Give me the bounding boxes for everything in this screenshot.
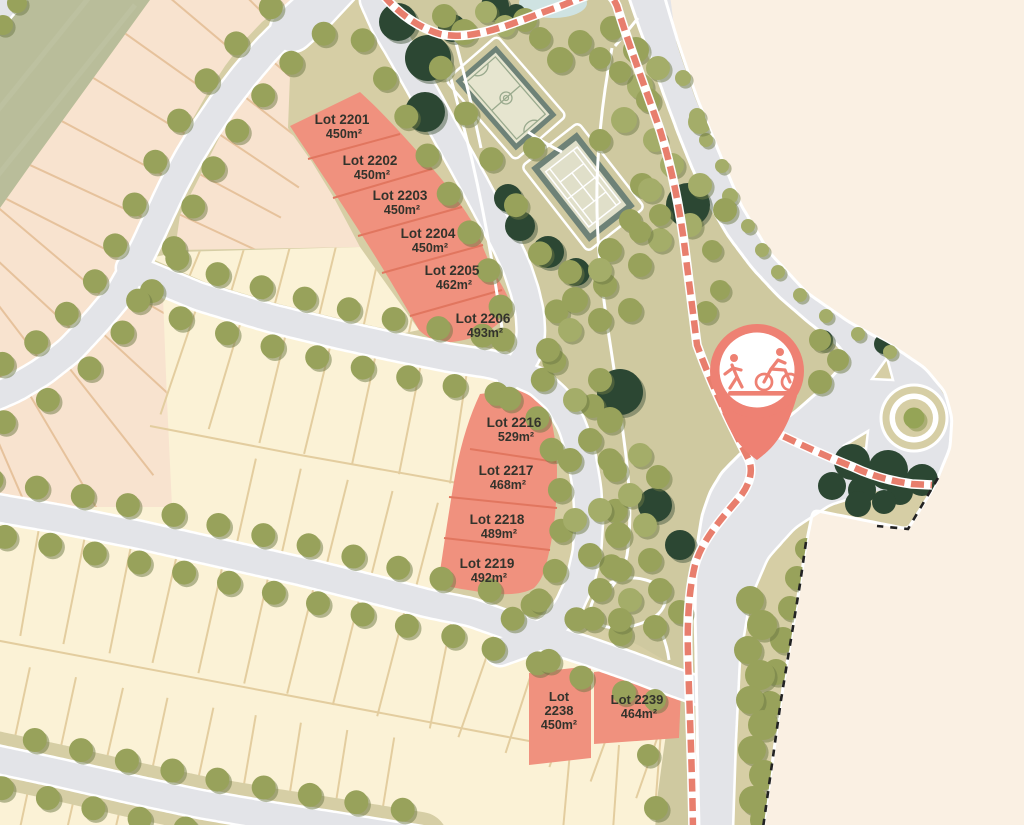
svg-text:489m²: 489m² bbox=[481, 527, 517, 541]
svg-text:Lot 2239: Lot 2239 bbox=[611, 692, 664, 707]
svg-text:450m²: 450m² bbox=[326, 127, 362, 141]
svg-text:Lot 2205: Lot 2205 bbox=[425, 263, 480, 278]
svg-text:Lot: Lot bbox=[549, 689, 570, 704]
svg-text:464m²: 464m² bbox=[621, 707, 657, 721]
svg-text:Lot 2202: Lot 2202 bbox=[343, 153, 398, 168]
svg-text:Lot 2203: Lot 2203 bbox=[373, 188, 428, 203]
svg-text:529m²: 529m² bbox=[498, 430, 534, 444]
svg-text:493m²: 493m² bbox=[467, 326, 503, 340]
svg-text:492m²: 492m² bbox=[471, 571, 507, 585]
svg-text:Lot 2218: Lot 2218 bbox=[470, 512, 525, 527]
svg-text:Lot 2204: Lot 2204 bbox=[401, 226, 456, 241]
svg-text:Lot 2216: Lot 2216 bbox=[487, 415, 542, 430]
svg-text:450m²: 450m² bbox=[384, 203, 420, 217]
svg-text:Lot 2219: Lot 2219 bbox=[460, 556, 515, 571]
svg-text:2238: 2238 bbox=[545, 703, 574, 718]
svg-text:Lot 2206: Lot 2206 bbox=[456, 311, 511, 326]
svg-text:450m²: 450m² bbox=[541, 718, 577, 732]
svg-text:Lot 2201: Lot 2201 bbox=[315, 112, 370, 127]
svg-text:468m²: 468m² bbox=[490, 478, 526, 492]
svg-text:462m²: 462m² bbox=[436, 278, 472, 292]
svg-text:Lot 2217: Lot 2217 bbox=[479, 463, 534, 478]
svg-text:450m²: 450m² bbox=[412, 241, 448, 255]
svg-text:450m²: 450m² bbox=[354, 168, 390, 182]
